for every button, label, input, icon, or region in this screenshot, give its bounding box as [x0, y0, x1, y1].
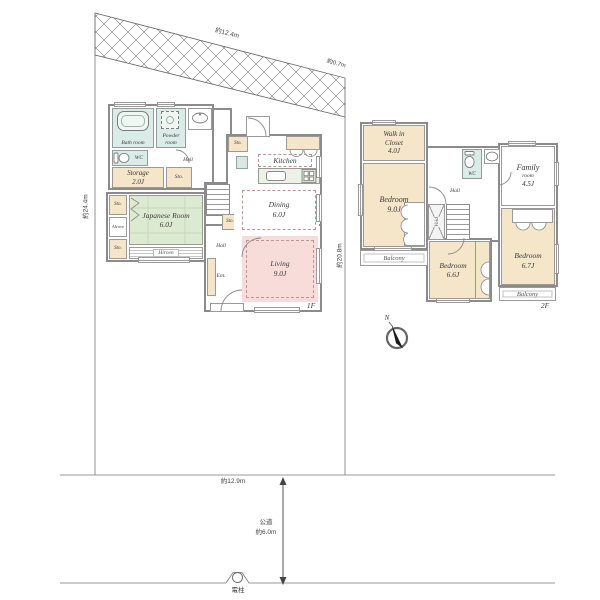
- window: [358, 184, 363, 216]
- kitchen-label: Kitchen: [273, 156, 296, 166]
- room-bedroom-b: Bedroom 6.6J: [429, 241, 477, 299]
- window: [157, 102, 175, 107]
- f1-service-porch: [246, 116, 270, 137]
- utility-pole-label: 電柱: [224, 587, 252, 594]
- dimension-left: 約24.4m: [82, 181, 89, 233]
- room-dining: Dining 6.0J: [242, 190, 316, 230]
- window: [316, 194, 322, 222]
- floor1-label: 1F: [302, 302, 320, 311]
- bedroom-b-label: Bedroom: [439, 261, 466, 270]
- storage-label: Storage: [127, 169, 149, 178]
- japanese-size: 6.0J: [160, 220, 173, 229]
- dining-label: Dining: [269, 200, 290, 210]
- bath-label: Bath room: [118, 140, 148, 147]
- f1-hall-lower-label: Hall: [208, 243, 234, 249]
- window: [138, 257, 190, 263]
- family-label2: room: [522, 173, 533, 180]
- sto-e-label: Sto.: [226, 219, 234, 225]
- dimension-bottom: 約12.9m: [203, 478, 263, 485]
- room-living: Living 9.0J: [246, 240, 314, 298]
- window: [436, 298, 470, 303]
- hiroen-label: Hiroen: [153, 249, 178, 257]
- window: [316, 248, 322, 284]
- road-name-label: 公道: [250, 519, 282, 526]
- dimension-top-right: 約0.7m: [314, 55, 358, 73]
- window: [372, 120, 396, 125]
- room-kitchen: Kitchen: [258, 154, 312, 167]
- stairs-1f: [206, 184, 230, 216]
- floor-plan-canvas: 約12.4m 約0.7m 約24.4m 約20.8m 約12.9m 公道 約6.…: [0, 0, 600, 600]
- washing-machine-icon: [161, 111, 179, 129]
- f1-hall-upper-label: Hall: [176, 157, 200, 163]
- kitchen-cupboard: [286, 136, 320, 150]
- living-label: Living: [270, 259, 289, 269]
- window: [508, 141, 536, 146]
- room-sto-a: Sto.: [166, 167, 192, 188]
- balcony-c-label: Balcony: [517, 291, 538, 298]
- dimension-right: 約20.8m: [336, 230, 343, 282]
- window: [554, 162, 559, 186]
- sto-c-label: Sto.: [114, 246, 122, 252]
- f2-hall-label: Hall: [442, 188, 468, 194]
- window: [554, 244, 559, 274]
- alcove-label: Alcove: [112, 224, 124, 230]
- f2-basin-nook: [484, 149, 500, 164]
- room-sto-b: Sto.: [109, 195, 127, 215]
- sto-b-label: Sto.: [114, 202, 122, 208]
- bedroom-b-closet: [475, 241, 490, 299]
- room-family: Family room 4.5J: [501, 146, 555, 206]
- fridge-icon: [236, 156, 248, 169]
- room-wc-2f: WC: [462, 149, 482, 179]
- void-area: Void: [428, 204, 445, 240]
- bedroom-c-closet: [512, 209, 553, 223]
- room-sto-d: Sto.: [228, 136, 248, 152]
- utility-pole-icon: [233, 573, 243, 583]
- kitchen-sink-icon: [266, 171, 286, 181]
- storage-size: 2.0J: [132, 178, 144, 187]
- bedroom-b-size: 6.6J: [447, 270, 460, 279]
- wc-1f-label: WC: [135, 155, 143, 162]
- sto-a-label: Sto.: [175, 174, 183, 181]
- dimension-top: 約12.4m: [196, 22, 258, 44]
- floor2-label: 2F: [536, 302, 554, 311]
- void-label: Void: [434, 217, 440, 227]
- room-japanese: Japanese Room 6.0J: [129, 195, 203, 245]
- window: [254, 307, 300, 313]
- powder-label: Powder room: [158, 133, 184, 147]
- room-alcove: Alcove: [109, 217, 127, 237]
- north-compass-icon: [387, 322, 407, 349]
- bedroom-main-closet: [404, 202, 425, 246]
- room-sto-c: Sto.: [109, 239, 127, 259]
- window: [316, 156, 322, 178]
- bathtub-icon: [117, 111, 149, 131]
- wic-size: 4.0J: [388, 147, 400, 156]
- road-width-label: 約6.0m: [248, 529, 284, 536]
- room-storage: Storage 2.0J: [112, 167, 164, 188]
- family-size: 4.5J: [522, 180, 534, 189]
- f1-entrance-label: Ent.: [208, 273, 234, 279]
- window: [114, 102, 146, 107]
- family-label: Family: [517, 163, 540, 173]
- north-label: N: [381, 314, 393, 322]
- balcony-main-label: Balcony: [383, 255, 404, 262]
- room-walk-in-closet: Walk in Closet 4.0J: [363, 125, 425, 161]
- balcony-c: Balcony: [499, 287, 556, 301]
- sto-d-label: Sto.: [234, 141, 242, 147]
- wic-label: Walk in Closet: [376, 130, 412, 148]
- stairs-2f: [446, 204, 470, 240]
- room-wc-1f: WC: [112, 150, 148, 166]
- road-far-edge-line: [60, 573, 555, 584]
- f1-entry-porch: [210, 303, 244, 312]
- bedroom-c-label: Bedroom: [514, 251, 541, 260]
- japanese-label: Japanese Room: [140, 211, 192, 220]
- bedroom-main-size: 9.0J: [387, 205, 401, 215]
- window: [374, 246, 412, 251]
- bedroom-c-size: 6.7J: [522, 261, 535, 270]
- balcony-main: Balcony: [360, 250, 428, 266]
- wc-2f-label: WC: [468, 172, 476, 178]
- f1-basin-nook: [188, 108, 212, 130]
- dining-size: 6.0J: [273, 210, 286, 220]
- living-size: 9.0J: [274, 269, 287, 279]
